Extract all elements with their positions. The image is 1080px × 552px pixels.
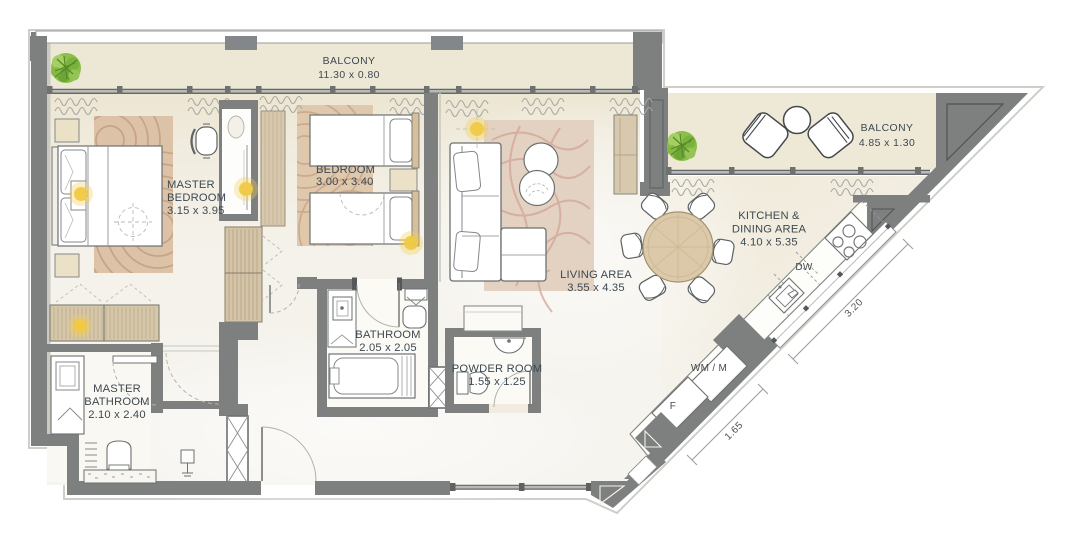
- svg-text:MASTER: MASTER: [167, 179, 215, 191]
- svg-text:BEDROOM: BEDROOM: [167, 192, 226, 204]
- svg-text:3.55 x 4.35: 3.55 x 4.35: [567, 282, 625, 294]
- svg-text:3.15 x 3.95: 3.15 x 3.95: [167, 205, 225, 217]
- svg-text:DW: DW: [795, 262, 813, 273]
- svg-text:2.10 x 2.40: 2.10 x 2.40: [88, 409, 146, 421]
- svg-text:4.85 x 1.30: 4.85 x 1.30: [859, 138, 915, 149]
- svg-text:WM / M: WM / M: [691, 363, 727, 374]
- svg-text:BATHROOM: BATHROOM: [355, 329, 420, 341]
- svg-text:4.10 x 5.35: 4.10 x 5.35: [740, 237, 798, 249]
- svg-text:POWDER ROOM: POWDER ROOM: [452, 363, 542, 375]
- svg-text:BEDROOM: BEDROOM: [316, 164, 375, 176]
- svg-text:BATHROOM: BATHROOM: [84, 396, 149, 408]
- svg-text:DINING AREA: DINING AREA: [732, 224, 807, 236]
- svg-text:KITCHEN &: KITCHEN &: [738, 210, 800, 222]
- svg-text:BALCONY: BALCONY: [861, 123, 914, 134]
- svg-text:2.05 x 2.05: 2.05 x 2.05: [359, 342, 417, 354]
- svg-text:1.55 x 1.25: 1.55 x 1.25: [468, 376, 526, 388]
- svg-text:3.00 x 3.40: 3.00 x 3.40: [316, 176, 374, 188]
- svg-text:MASTER: MASTER: [93, 383, 141, 395]
- svg-text:BALCONY: BALCONY: [323, 56, 376, 67]
- svg-text:11.30 x 0.80: 11.30 x 0.80: [318, 70, 380, 81]
- svg-text:LIVING AREA: LIVING AREA: [560, 269, 632, 281]
- svg-text:F: F: [670, 401, 676, 412]
